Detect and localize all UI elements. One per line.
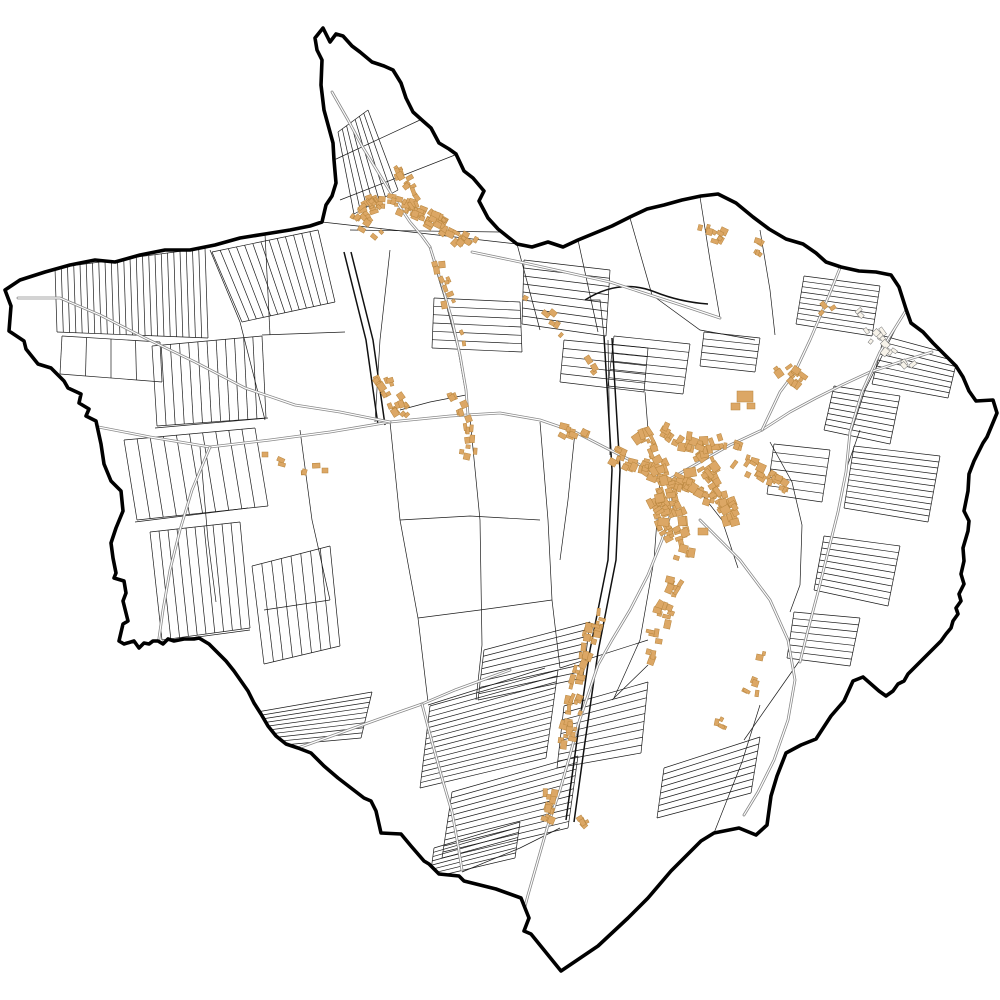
building-footprint bbox=[591, 638, 597, 644]
building-footprint bbox=[575, 680, 583, 685]
building-footprint bbox=[581, 643, 586, 652]
commune-area bbox=[5, 28, 997, 971]
building-footprint bbox=[582, 651, 588, 660]
building-footprint bbox=[593, 630, 601, 637]
building-footprint bbox=[466, 445, 471, 449]
building-footprint bbox=[686, 431, 692, 440]
building-footprint bbox=[378, 196, 385, 202]
building-footprint bbox=[459, 449, 464, 454]
building-footprint bbox=[432, 261, 438, 267]
building-footprint bbox=[678, 516, 687, 526]
building-footprint bbox=[473, 448, 477, 455]
building-footprint bbox=[574, 700, 578, 705]
building-footprint bbox=[755, 690, 759, 697]
building-footprint bbox=[466, 427, 469, 434]
building-footprint bbox=[470, 435, 475, 443]
building-footprint bbox=[683, 467, 696, 478]
building-footprint bbox=[747, 403, 755, 409]
building-footprint bbox=[463, 453, 471, 461]
building-footprint bbox=[687, 548, 695, 558]
building-footprint bbox=[560, 740, 567, 749]
building-footprint bbox=[658, 518, 670, 527]
cadastral-map-svg bbox=[0, 0, 1000, 1000]
cadastral-map bbox=[0, 0, 1000, 1000]
building-footprint bbox=[597, 608, 601, 616]
building-footprint bbox=[596, 621, 600, 625]
building-footprint bbox=[731, 403, 740, 410]
building-footprint bbox=[551, 789, 559, 797]
building-footprint bbox=[646, 649, 652, 655]
building-footprint bbox=[567, 705, 570, 712]
building-footprint bbox=[698, 528, 708, 535]
building-footprint bbox=[545, 804, 552, 812]
building-footprint bbox=[546, 794, 551, 799]
building-footprint bbox=[654, 493, 665, 504]
building-footprint bbox=[439, 261, 446, 268]
building-footprint bbox=[579, 652, 582, 658]
building-footprint bbox=[568, 722, 573, 727]
building-footprint bbox=[262, 452, 268, 457]
building-footprint bbox=[666, 492, 676, 499]
building-footprint bbox=[737, 391, 753, 402]
building-footprint bbox=[441, 301, 448, 309]
building-footprint bbox=[312, 463, 320, 468]
building-footprint bbox=[322, 468, 328, 473]
building-footprint bbox=[762, 651, 766, 655]
building-footprint bbox=[576, 694, 583, 700]
building-footprint bbox=[655, 638, 662, 644]
building-footprint bbox=[573, 727, 577, 731]
building-footprint bbox=[469, 425, 473, 432]
building-footprint bbox=[583, 634, 590, 642]
building-footprint bbox=[395, 203, 398, 206]
building-footprint bbox=[462, 341, 466, 346]
building-footprint bbox=[445, 280, 449, 284]
